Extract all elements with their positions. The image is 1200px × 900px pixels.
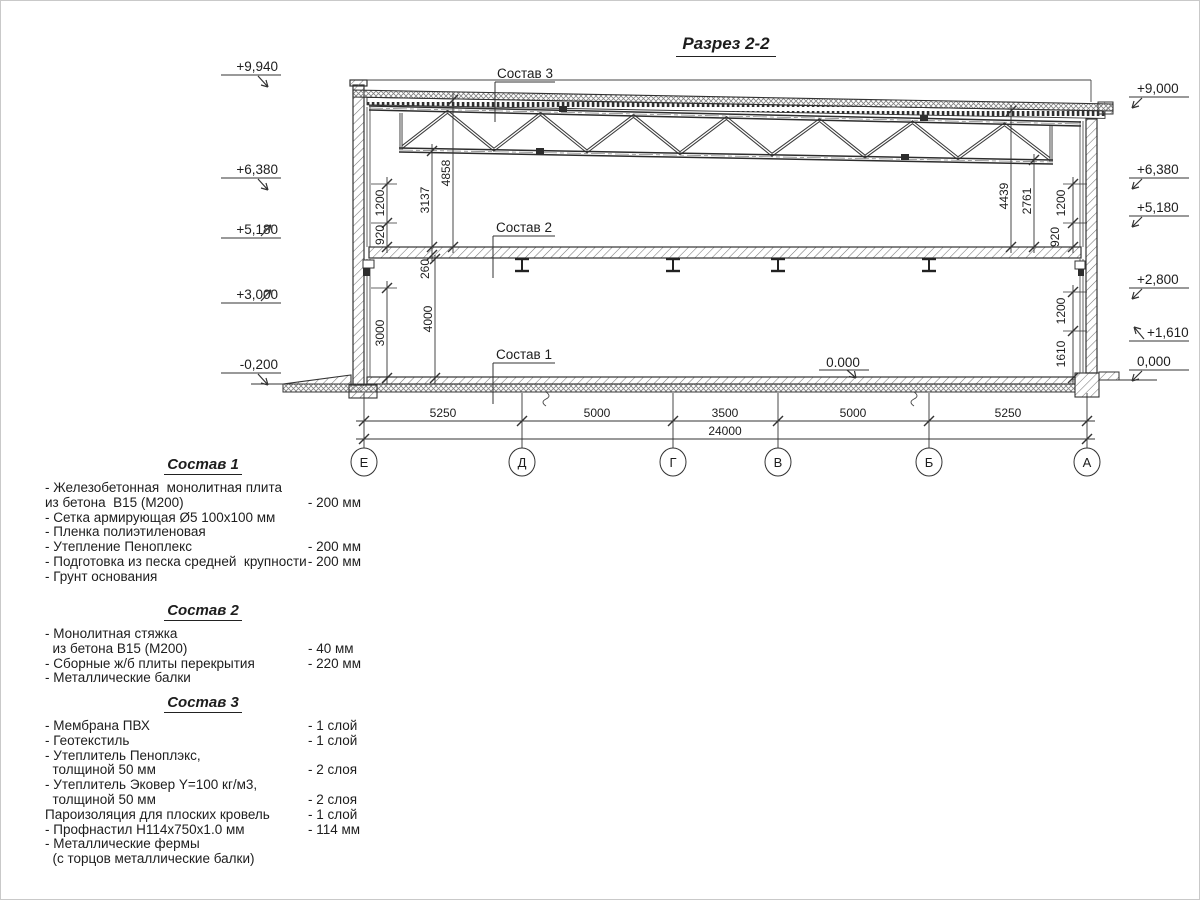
elev-5180-right: +5,180	[1137, 200, 1179, 215]
composition-row: - Металлические фермы	[45, 837, 361, 852]
elev-arrow-down	[258, 179, 268, 190]
composition-title: Состав 2	[45, 602, 361, 621]
beam-bearing-right	[1075, 261, 1085, 269]
composition-row: толщиной 50 мм- 2 слоя	[45, 793, 361, 808]
composition-title: Состав 1	[45, 456, 361, 475]
layer-label: из бетона В15 (М200)	[45, 496, 308, 511]
layer-label: Пароизоляция для плоских кровель	[45, 808, 308, 823]
composition-rows: - Монолитная стяжка из бетона В15 (М200)…	[45, 627, 361, 686]
drawing-title: Разрез 2-2	[253, 34, 1199, 57]
steel-beam	[771, 258, 785, 271]
hdim-2: 5000	[584, 406, 611, 420]
composition-rows: - Мембрана ПВХ- 1 слой- Геотекстиль- 1 с…	[45, 719, 361, 867]
chord-splice	[920, 115, 928, 121]
elevation-marks-right: +9,000 +6,380 +5,180 +2,800 +1,610 0,000	[1129, 81, 1189, 381]
elev-arrow-up	[1134, 327, 1144, 339]
layer-thickness: - 200 мм	[308, 540, 361, 555]
axis-V: В	[774, 455, 783, 470]
layer-label: - Сборные ж/б плиты перекрытия	[45, 657, 308, 672]
composition-3: Состав 3 - Мембрана ПВХ- 1 слой- Геотекс…	[45, 694, 361, 867]
composition-row: - Монолитная стяжка	[45, 627, 361, 642]
elev-6380-left: +6,380	[236, 162, 278, 177]
elevation-marks-left: +9,940 +6,380 +5,180 +3,000 -0,200	[221, 59, 281, 385]
elev-arrow-down	[1132, 217, 1142, 227]
layer-thickness: - 114 мм	[308, 823, 360, 838]
intermediate-floor	[363, 247, 1085, 276]
callout-zero-level: 0.000	[826, 355, 860, 370]
axis-bubbles: Е Д Г В Б А	[351, 448, 1100, 476]
dim-3137: 3137	[418, 186, 432, 213]
steel-beam	[666, 258, 680, 271]
beam-bearing-right	[1078, 269, 1084, 276]
beam-bearing-left	[363, 260, 374, 268]
composition-row: - Сетка армирующая Ø5 100х100 мм	[45, 511, 361, 526]
composition-row: - Утеплитель Пеноплэкс,	[45, 749, 361, 764]
chord-splice	[901, 154, 909, 160]
callout-sostav-1: Состав 1	[496, 347, 552, 362]
axis-D: Д	[518, 455, 527, 470]
elev-9000: +9,000	[1137, 81, 1179, 96]
layer-thickness: - 40 мм	[308, 642, 354, 657]
break-mark	[543, 392, 549, 406]
composition-row: - Сборные ж/б плиты перекрытия- 220 мм	[45, 657, 361, 672]
layer-thickness: - 200 мм	[308, 496, 361, 511]
elev-arrow-down	[258, 374, 268, 385]
composition-1: Состав 1 - Железобетонная монолитная пли…	[45, 456, 361, 585]
callout-sostav-3: Состав 3	[497, 66, 553, 81]
left-wall	[350, 80, 370, 385]
elev-arrow-down	[1132, 289, 1142, 299]
layer-thickness: - 200 мм	[308, 555, 361, 570]
axis-E: Е	[360, 455, 369, 470]
composition-row: толщиной 50 мм- 2 слоя	[45, 763, 361, 778]
composition-row: - Железобетонная монолитная плита	[45, 481, 361, 496]
entrance-ramp	[283, 375, 351, 384]
composition-row: - Металлические балки	[45, 671, 361, 686]
layer-label: - Металлические фермы	[45, 837, 308, 852]
composition-row: - Грунт основания	[45, 570, 361, 585]
vertical-dims-right	[1006, 105, 1087, 384]
composition-row: из бетона В15 (М200)- 40 мм	[45, 642, 361, 657]
left-foundation	[349, 385, 377, 398]
composition-2: Состав 2 - Монолитная стяжка из бетона В…	[45, 602, 361, 686]
hdim-3: 3500	[712, 406, 739, 420]
drawing-sheet: Разрез 2-2	[0, 0, 1200, 900]
layer-thickness: - 2 слоя	[308, 763, 357, 778]
beam-bearing-left	[363, 268, 370, 276]
layer-label: - Грунт основания	[45, 570, 308, 585]
layer-label: - Монолитная стяжка	[45, 627, 308, 642]
axis-B: Б	[925, 455, 934, 470]
layer-label: - Утеплитель Эковер Y=100 кг/м3,	[45, 778, 308, 793]
right-plinth	[1099, 372, 1119, 380]
horizontal-dims	[356, 393, 1095, 448]
break-mark	[911, 392, 917, 406]
elev-9940: +9,940	[236, 59, 278, 74]
layer-label: (с торцов металлические балки)	[45, 852, 308, 867]
floor-slab-top-layer	[367, 377, 1075, 384]
elev-arrow-down	[1132, 179, 1142, 189]
elev-6380-right: +6,380	[1137, 162, 1179, 177]
hdim-4: 5000	[840, 406, 867, 420]
composition-row: из бетона В15 (М200)- 200 мм	[45, 496, 361, 511]
dim-920-left: 920	[373, 225, 387, 245]
hdim-5: 5250	[995, 406, 1022, 420]
elev-0000: 0,000	[1137, 354, 1171, 369]
dim-1200-left: 1200	[373, 189, 387, 216]
hdim-total: 24000	[708, 424, 742, 438]
layer-thickness: - 1 слой	[308, 808, 357, 823]
callout-sostav-2: Состав 2	[496, 220, 552, 235]
layer-label: - Геотекстиль	[45, 734, 308, 749]
dim-920-right: 920	[1048, 227, 1062, 247]
composition-row: - Профнастил Н114х750х1.0 мм- 114 мм	[45, 823, 361, 838]
floor-slab-base-layer	[283, 384, 1075, 392]
composition-row: - Пленка полиэтиленовая	[45, 525, 361, 540]
layer-label: - Пленка полиэтиленовая	[45, 525, 308, 540]
dim-1200-right-lower: 1200	[1054, 297, 1068, 324]
layer-label: - Утеплитель Пеноплэкс,	[45, 749, 308, 764]
composition-row: - Утепление Пеноплекс- 200 мм	[45, 540, 361, 555]
axis-A: А	[1083, 455, 1092, 470]
composition-row: - Мембрана ПВХ- 1 слой	[45, 719, 361, 734]
chord-splice	[536, 148, 544, 154]
composition-row: - Утеплитель Эковер Y=100 кг/м3,	[45, 778, 361, 793]
roof-fascia	[1098, 102, 1113, 114]
layer-thickness: - 1 слой	[308, 719, 357, 734]
layer-thickness: - 220 мм	[308, 657, 361, 672]
composition-row: Пароизоляция для плоских кровель- 1 слой	[45, 808, 361, 823]
axis-G: Г	[669, 455, 676, 470]
composition-row: (с торцов металлические балки)	[45, 852, 361, 867]
layer-label: из бетона В15 (М200)	[45, 642, 308, 657]
dim-2761: 2761	[1020, 187, 1034, 214]
composition-title: Состав 3	[45, 694, 361, 713]
layer-label: толщиной 50 мм	[45, 793, 308, 808]
elev-arrow-down	[258, 76, 268, 87]
layer-thickness: - 1 слой	[308, 734, 357, 749]
elev-2800: +2,800	[1137, 272, 1179, 287]
layer-label: - Металлические балки	[45, 671, 308, 686]
chord-splice	[559, 106, 567, 112]
elev-minus-0200: -0,200	[240, 357, 278, 372]
steel-beam	[515, 258, 529, 271]
dim-260: 260	[418, 259, 432, 279]
composition-rows: - Железобетонная монолитная плитаиз бето…	[45, 481, 361, 585]
layer-label: - Сетка армирующая Ø5 100х100 мм	[45, 511, 308, 526]
layer-thickness: - 2 слоя	[308, 793, 357, 808]
elev-3000: +3,000	[236, 287, 278, 302]
right-wall	[1080, 119, 1097, 373]
parapet-cap	[350, 80, 367, 86]
dim-1610: 1610	[1054, 340, 1068, 367]
steel-beam	[922, 258, 936, 271]
layer-label: - Мембрана ПВХ	[45, 719, 308, 734]
dim-3000: 3000	[373, 319, 387, 346]
layer-label: - Подготовка из песка средней крупности	[45, 555, 308, 570]
layer-label: - Утепление Пеноплекс	[45, 540, 308, 555]
dim-4439: 4439	[997, 182, 1011, 209]
dim-1200-right-upper: 1200	[1054, 189, 1068, 216]
elev-5180-left: +5,180	[236, 222, 278, 237]
composition-row: - Подготовка из песка средней крупности-…	[45, 555, 361, 570]
elev-arrow-down	[1132, 98, 1142, 108]
dim-4858: 4858	[439, 159, 453, 186]
hdim-1: 5250	[430, 406, 457, 420]
layer-label: толщиной 50 мм	[45, 763, 308, 778]
composition-row: - Геотекстиль- 1 слой	[45, 734, 361, 749]
floor-slab	[369, 247, 1081, 258]
layer-label: - Железобетонная монолитная плита	[45, 481, 308, 496]
elev-1610: +1,610	[1147, 325, 1189, 340]
layer-label: - Профнастил Н114х750х1.0 мм	[45, 823, 308, 838]
dim-4000: 4000	[421, 305, 435, 332]
